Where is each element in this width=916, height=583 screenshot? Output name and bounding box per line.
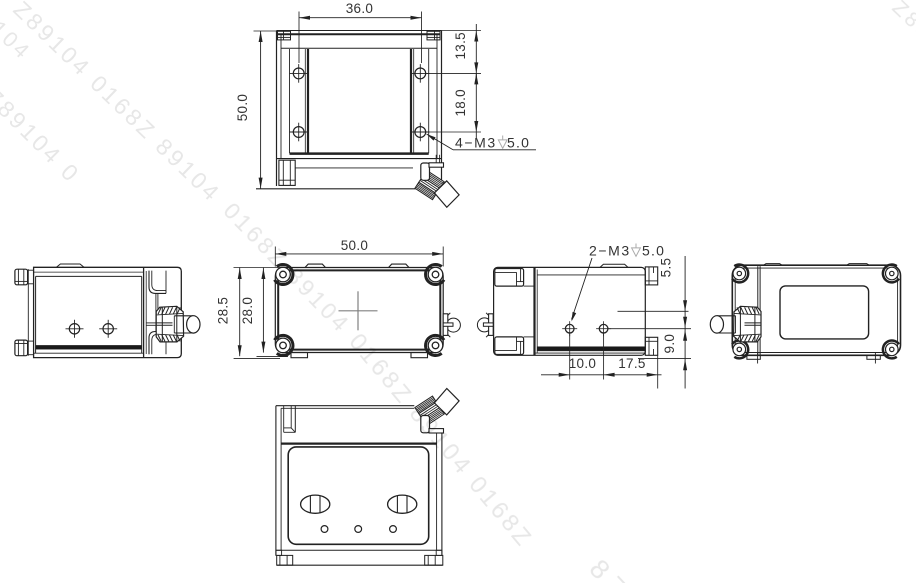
svg-text:36.0: 36.0 [346,1,373,16]
svg-text:4−M3: 4−M3 [455,135,497,151]
svg-text:50.0: 50.0 [235,94,250,121]
svg-text:5.0: 5.0 [642,243,665,259]
svg-text:5.0: 5.0 [507,135,530,151]
svg-text:28.5: 28.5 [215,297,230,324]
svg-text:28.0: 28.0 [240,297,255,324]
svg-text:17.5: 17.5 [618,356,645,371]
svg-text:5.5: 5.5 [659,258,674,278]
svg-text:13.5: 13.5 [453,32,468,59]
svg-text:50.0: 50.0 [341,238,368,253]
svg-text:10.0: 10.0 [569,356,596,371]
svg-text:18.0: 18.0 [453,89,468,116]
svg-text:9.0: 9.0 [662,334,677,354]
svg-text:2−M3: 2−M3 [589,243,631,259]
